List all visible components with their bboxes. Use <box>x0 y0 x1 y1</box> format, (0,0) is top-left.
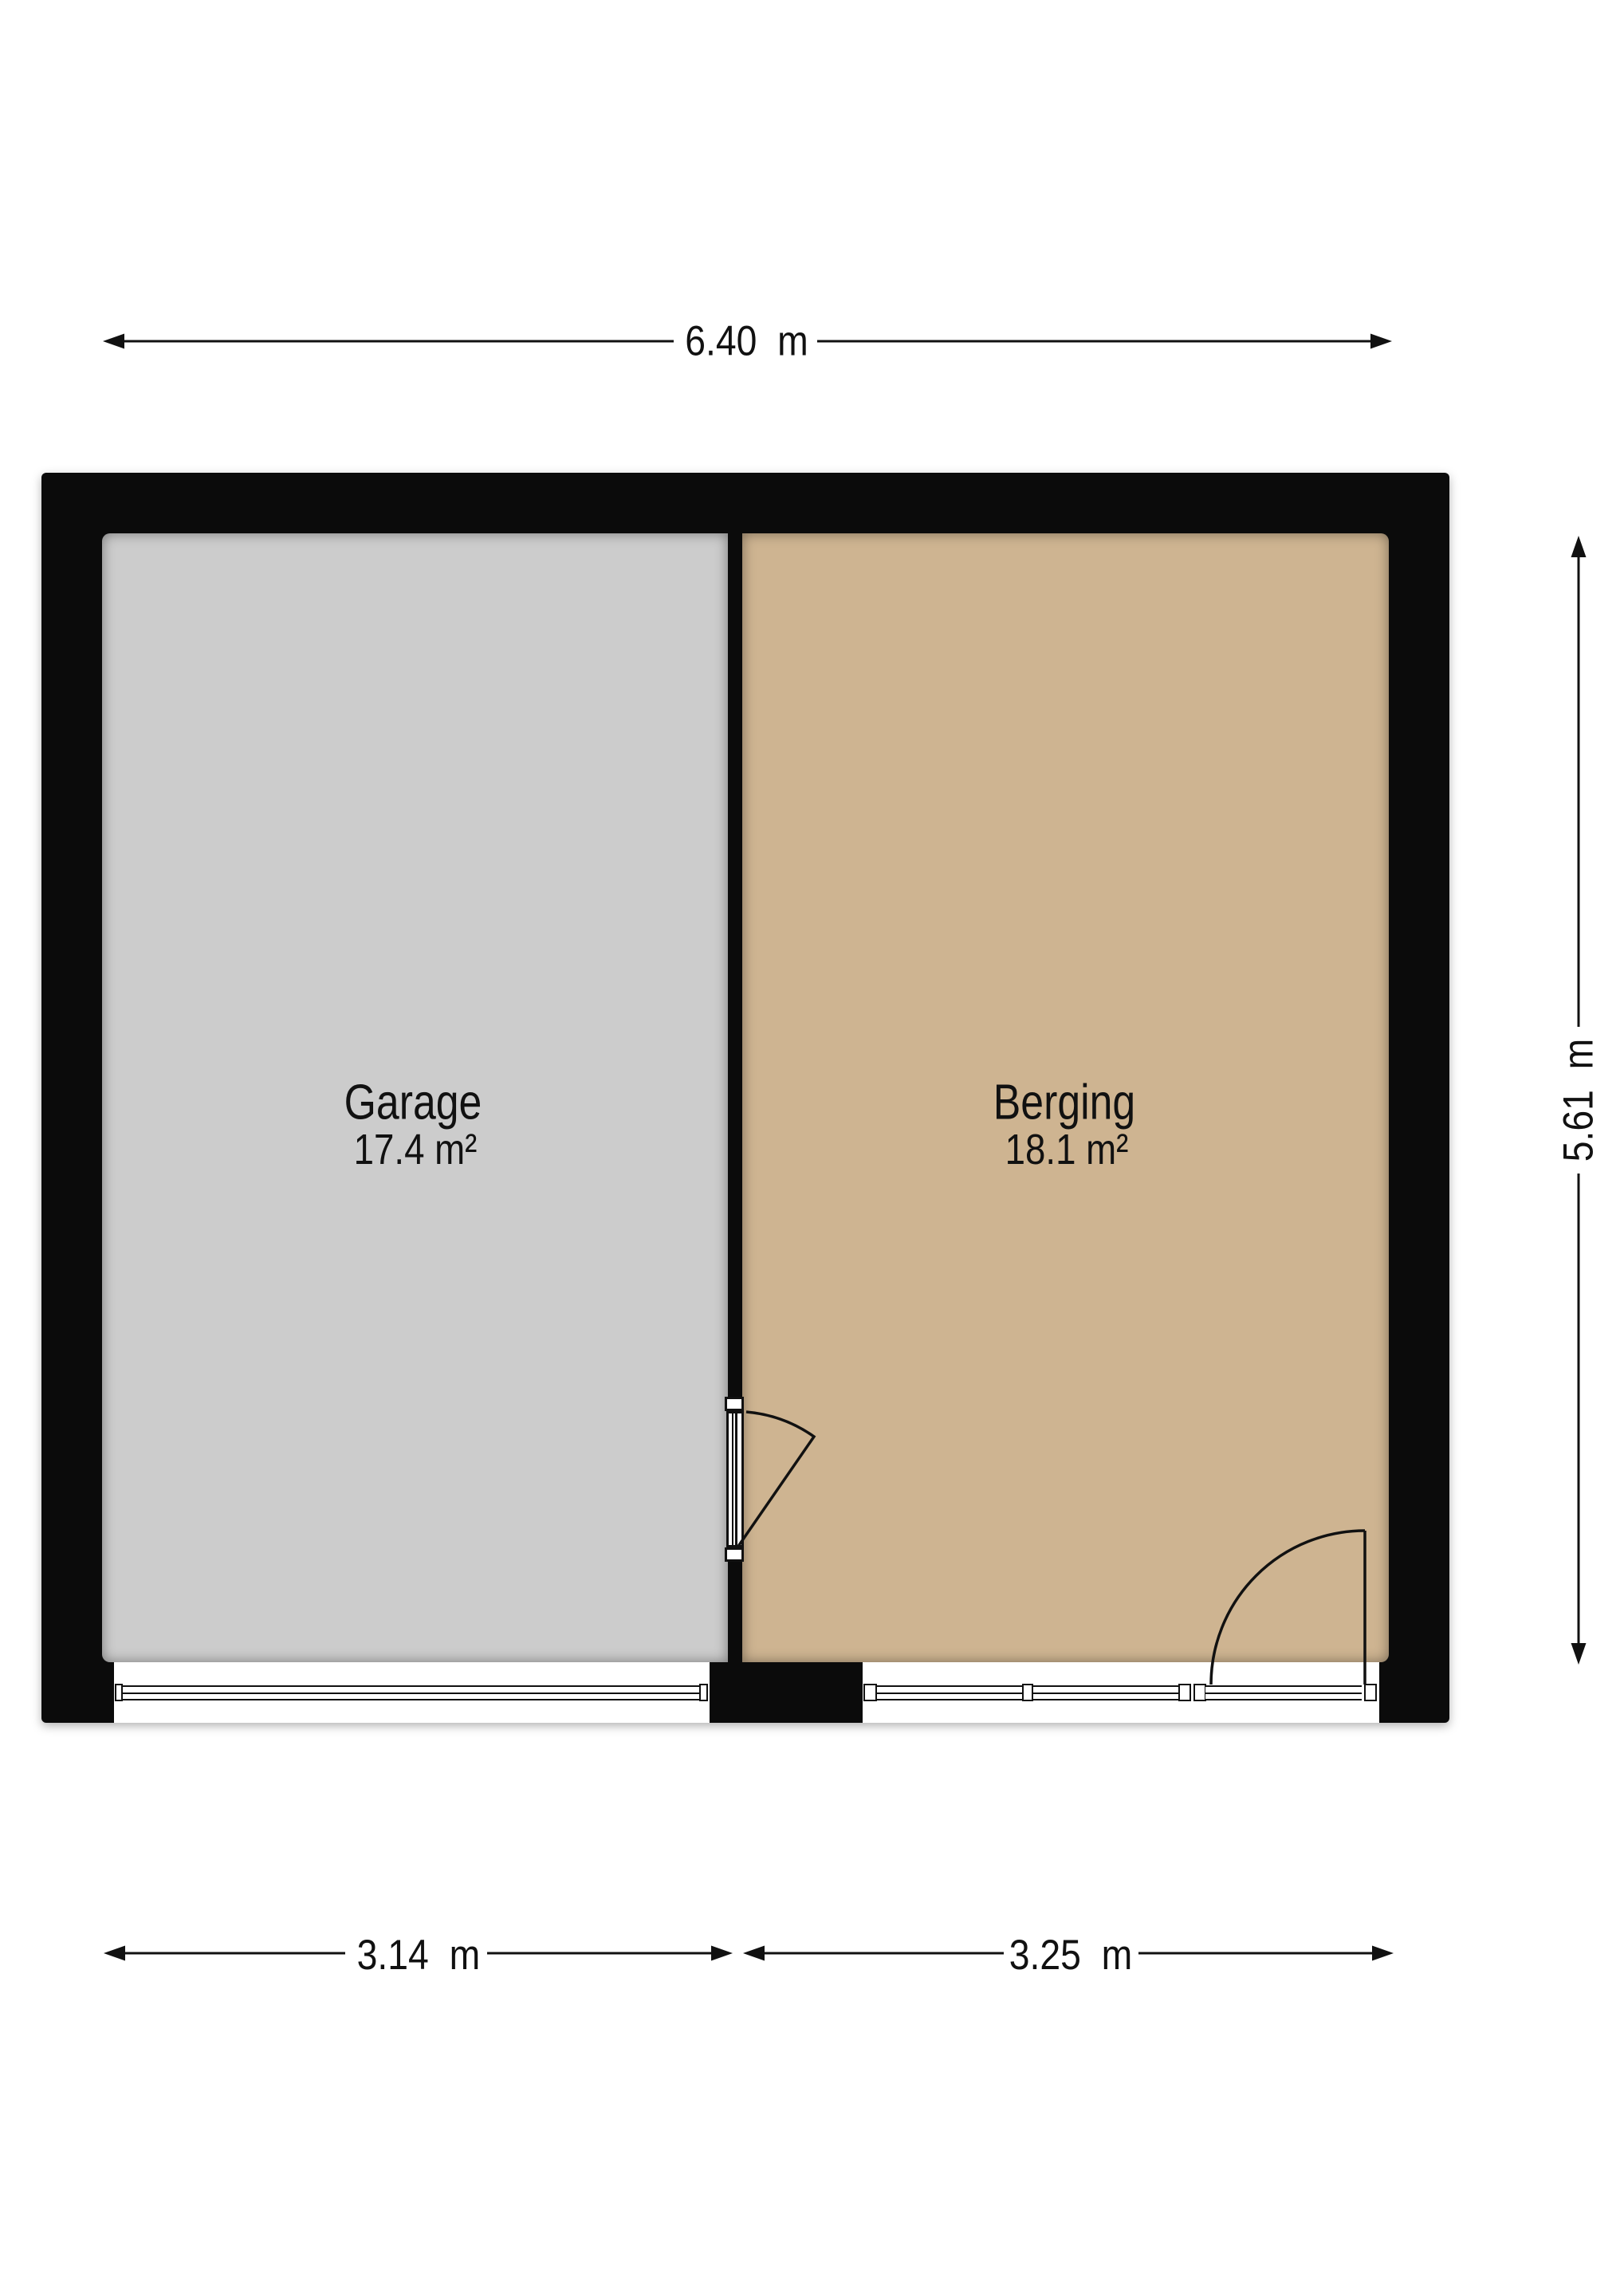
svg-text:3.25 m: 3.25 m <box>1009 1931 1133 1979</box>
svg-text:3.14 m: 3.14 m <box>357 1931 481 1979</box>
svg-text:6.40 m: 6.40 m <box>685 317 808 365</box>
svg-text:5.61 m: 5.61 m <box>1555 1039 1602 1162</box>
